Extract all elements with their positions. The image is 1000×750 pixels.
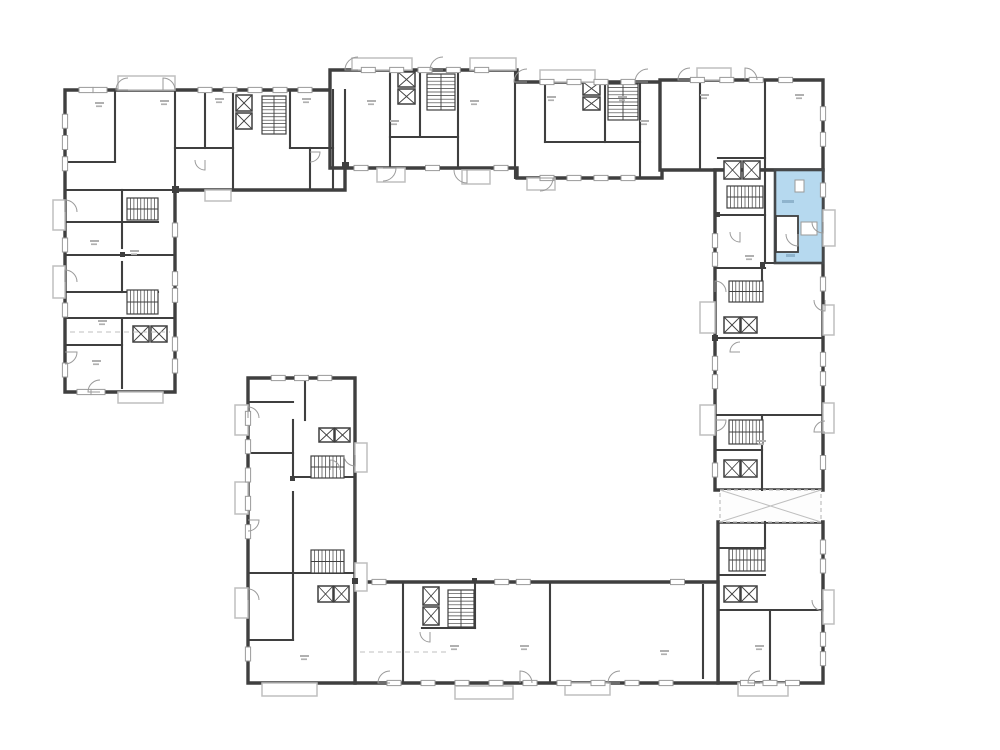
label-smudge xyxy=(471,103,477,105)
window xyxy=(621,79,635,84)
balcony xyxy=(118,392,163,403)
label-smudge xyxy=(130,250,139,252)
label-smudge xyxy=(641,123,647,125)
window xyxy=(446,67,460,72)
label-smudge xyxy=(701,97,707,99)
balcony xyxy=(262,683,317,696)
window xyxy=(475,67,489,72)
window xyxy=(712,252,717,266)
window xyxy=(671,579,685,584)
window xyxy=(820,107,825,121)
window xyxy=(172,223,177,237)
balcony xyxy=(205,190,231,201)
window xyxy=(79,87,93,92)
shaft-square xyxy=(472,578,477,583)
window xyxy=(690,77,704,82)
building-wings xyxy=(65,70,823,683)
window xyxy=(712,463,717,477)
floor-plan-page xyxy=(0,0,1000,750)
window xyxy=(245,440,250,454)
window xyxy=(820,456,825,470)
shaft-square xyxy=(172,186,179,193)
label-smudge xyxy=(216,101,222,103)
label-smudge xyxy=(215,98,224,100)
label-smudge xyxy=(93,363,99,365)
balcony xyxy=(377,168,405,182)
shaft-square xyxy=(715,212,720,217)
window xyxy=(720,77,734,82)
label-smudge xyxy=(368,103,374,105)
wing-bottom-wing xyxy=(355,582,718,683)
floor-plan-svg xyxy=(0,0,1000,750)
balcony xyxy=(823,590,834,624)
wing-mid-left-wing xyxy=(248,378,355,683)
window xyxy=(820,352,825,366)
shaft-square xyxy=(342,162,349,169)
label-smudge xyxy=(450,645,459,647)
label-smudge xyxy=(756,648,762,650)
window xyxy=(820,540,825,554)
label-smudge xyxy=(548,99,554,101)
shaft-square xyxy=(352,578,358,584)
window xyxy=(223,87,237,92)
window xyxy=(820,652,825,666)
window xyxy=(594,175,608,180)
window xyxy=(779,77,793,82)
window xyxy=(489,680,503,685)
window xyxy=(198,87,212,92)
window xyxy=(523,680,537,685)
balcony xyxy=(355,443,367,472)
label-smudge xyxy=(91,243,97,245)
window xyxy=(712,356,717,370)
window xyxy=(271,375,285,380)
label-smudge xyxy=(547,96,556,98)
window xyxy=(295,375,309,380)
window xyxy=(591,680,605,685)
label-smudge xyxy=(758,443,764,445)
window xyxy=(494,165,508,170)
window xyxy=(245,468,250,482)
shaft-squares xyxy=(120,162,765,584)
door-arc xyxy=(635,69,648,82)
window xyxy=(421,680,435,685)
window xyxy=(93,87,107,92)
label-smudge xyxy=(98,320,107,322)
unit-bathroom xyxy=(776,216,798,252)
label-smudge xyxy=(390,120,399,122)
shaft-square xyxy=(712,335,718,341)
window xyxy=(820,132,825,146)
label-smudge xyxy=(90,240,99,242)
label-smudge xyxy=(700,94,709,96)
label-smudge xyxy=(796,97,802,99)
balcony xyxy=(700,302,715,333)
window xyxy=(557,680,571,685)
balcony xyxy=(53,200,65,230)
wing-top-right-wing xyxy=(660,80,823,170)
window xyxy=(62,238,67,252)
label-smudge xyxy=(300,655,309,657)
window xyxy=(361,67,375,72)
window xyxy=(245,647,250,661)
window xyxy=(749,77,763,82)
label-smudge xyxy=(95,102,104,104)
label-smudge xyxy=(521,648,527,650)
window xyxy=(172,337,177,351)
window xyxy=(820,559,825,573)
shaft-square xyxy=(120,252,125,257)
window xyxy=(172,288,177,302)
window xyxy=(245,525,250,539)
window xyxy=(455,680,469,685)
window xyxy=(248,87,262,92)
window xyxy=(820,632,825,646)
window xyxy=(567,175,581,180)
label-smudge xyxy=(618,96,627,98)
window xyxy=(62,363,67,377)
window xyxy=(621,175,635,180)
label-smudge xyxy=(451,648,457,650)
balcony xyxy=(462,170,490,184)
balcony xyxy=(235,588,248,618)
window xyxy=(712,234,717,248)
window xyxy=(763,680,777,685)
door-arc xyxy=(678,68,690,80)
balcony xyxy=(53,266,65,298)
window xyxy=(540,79,554,84)
window xyxy=(62,114,67,128)
label-smudge xyxy=(660,650,669,652)
balcony xyxy=(455,686,513,699)
label-smudge xyxy=(757,440,766,442)
window xyxy=(820,183,825,197)
label-smudge xyxy=(391,123,397,125)
balcony xyxy=(355,563,367,591)
window xyxy=(820,372,825,386)
window xyxy=(712,375,717,389)
window xyxy=(495,579,509,584)
label-smudge xyxy=(160,100,169,102)
label-smudge xyxy=(302,98,311,100)
label-smudge xyxy=(619,99,625,101)
label-smudge xyxy=(301,658,307,660)
unit-label-smudge xyxy=(786,254,795,257)
label-smudge xyxy=(470,100,479,102)
window xyxy=(516,579,530,584)
balcony xyxy=(823,210,835,246)
label-smudge xyxy=(303,101,309,103)
label-smudge xyxy=(661,653,667,655)
label-smudge xyxy=(99,323,105,325)
window xyxy=(172,272,177,286)
window xyxy=(318,375,332,380)
window xyxy=(62,157,67,171)
window xyxy=(354,165,368,170)
label-smudge xyxy=(161,103,167,105)
window xyxy=(594,79,608,84)
window xyxy=(62,303,67,317)
balcony xyxy=(700,405,715,435)
balcony xyxy=(823,403,834,433)
label-smudge xyxy=(745,255,754,257)
label-smudge xyxy=(92,360,101,362)
label-smudge xyxy=(131,253,137,255)
shaft-square xyxy=(760,262,765,267)
unit-label-smudge xyxy=(782,200,794,203)
unit-fixture xyxy=(795,180,804,192)
label-smudge xyxy=(640,120,649,122)
window xyxy=(567,79,581,84)
connector-passage xyxy=(720,490,821,522)
label-smudge xyxy=(795,94,804,96)
window xyxy=(426,165,440,170)
label-smudge xyxy=(367,100,376,102)
window xyxy=(659,680,673,685)
window xyxy=(786,680,800,685)
window xyxy=(372,579,386,584)
window xyxy=(62,136,67,150)
shaft-square xyxy=(290,476,295,481)
window xyxy=(245,496,250,510)
window xyxy=(625,680,639,685)
window xyxy=(273,87,287,92)
label-smudge xyxy=(746,258,752,260)
window xyxy=(390,67,404,72)
label-smudge xyxy=(520,645,529,647)
window xyxy=(172,359,177,373)
window xyxy=(820,277,825,291)
highlighted-unit[interactable] xyxy=(775,170,823,263)
label-smudge xyxy=(96,105,102,107)
label-smudge xyxy=(755,645,764,647)
window xyxy=(298,87,312,92)
